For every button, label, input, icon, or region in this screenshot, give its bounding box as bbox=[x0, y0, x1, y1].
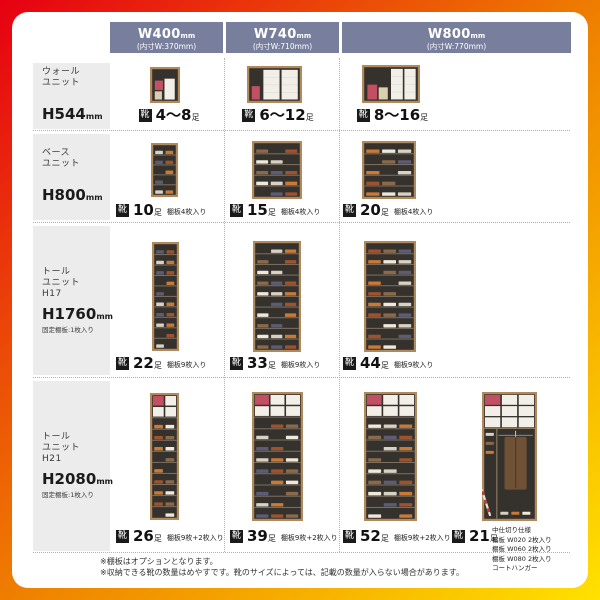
shelf-count-note: 棚板9枚入り bbox=[394, 360, 433, 370]
shelf-count-note: 棚板9枚入り bbox=[281, 360, 320, 370]
fixed-shelf-note: 固定棚板:1枚入り bbox=[42, 326, 110, 335]
shelf-count-note: 棚板4枚入り bbox=[167, 207, 206, 217]
cabinet-image-w800-h800 bbox=[362, 141, 416, 199]
capacity-label-w740-h1760: 靴 33 足 棚板9枚入り bbox=[230, 355, 335, 371]
column-inner-width: (内寸W:770mm) bbox=[342, 43, 571, 52]
shoe-badge-icon: 靴 bbox=[230, 357, 243, 370]
row-height-value: H800 bbox=[42, 186, 86, 204]
row-height-value: H1760 bbox=[42, 305, 96, 323]
capacity-label-w400-h2080: 靴 26 足 棚板9枚+2枚入り bbox=[116, 528, 228, 544]
capacity-label-w740-h800: 靴 15 足 棚板4枚入り bbox=[230, 202, 335, 218]
coat-unit-spec-notes: 中仕切り仕様 棚板 W020 2枚入り 棚板 W060 2枚入り 棚板 W080… bbox=[492, 526, 577, 574]
capacity-label-w740-h544: 靴 6〜12 足 bbox=[237, 107, 319, 123]
capacity-label-w400-h1760: 靴 22 足 棚板9枚入り bbox=[116, 355, 221, 371]
cabinet-image-w400-h1760 bbox=[152, 242, 179, 351]
capacity-label-w400-h544: 靴 4〜8 足 bbox=[134, 107, 204, 123]
shoe-badge-icon: 靴 bbox=[343, 357, 356, 370]
shoe-badge-icon: 靴 bbox=[230, 204, 243, 217]
shelf-count-note: 棚板4枚入り bbox=[394, 207, 433, 217]
column-divider bbox=[224, 58, 225, 552]
row-height-value: H544 bbox=[42, 105, 86, 123]
capacity-label-w800-h2080: 靴 52 足 棚板9枚+2枚入り bbox=[343, 528, 455, 544]
shelf-count-note: 棚板4枚入り bbox=[281, 207, 320, 217]
column-divider bbox=[339, 58, 340, 552]
shoe-badge-icon: 靴 bbox=[452, 530, 465, 543]
row-header-tall-unit-h21: トール ユニット H21 H2080mm 固定棚板:1枚入り bbox=[33, 381, 110, 551]
shoe-badge-icon: 靴 bbox=[242, 109, 255, 122]
shoe-badge-icon: 靴 bbox=[116, 530, 129, 543]
shoe-badge-icon: 靴 bbox=[230, 530, 243, 543]
row-header-tall-unit-h17: トール ユニット H17 H1760mm 固定棚板:1枚入り bbox=[33, 226, 110, 375]
row-header-base-unit: ベース ユニット H800mm bbox=[33, 134, 110, 220]
cabinet-image-w800-h1760 bbox=[364, 241, 416, 352]
shoe-badge-icon: 靴 bbox=[139, 109, 152, 122]
shelf-count-note: 棚板9枚+2枚入り bbox=[167, 533, 224, 543]
fixed-shelf-note: 固定棚板:1枚入り bbox=[42, 491, 110, 500]
capacity-label-w800-h800: 靴 20 足 棚板4枚入り bbox=[343, 202, 453, 218]
shoe-badge-icon: 靴 bbox=[357, 109, 370, 122]
column-header-w800: W800mm (内寸W:770mm) bbox=[342, 22, 571, 53]
row-divider bbox=[33, 222, 570, 223]
column-header-w400: W400mm (内寸W:370mm) bbox=[110, 22, 223, 53]
cabinet-image-w740-h2080 bbox=[252, 392, 303, 521]
shelf-count-note: 棚板9枚+2枚入り bbox=[281, 533, 338, 543]
shelf-count-note: 棚板9枚入り bbox=[167, 360, 206, 370]
column-width-value: W400 bbox=[138, 27, 181, 42]
cabinet-image-w800-h544 bbox=[362, 65, 420, 103]
capacity-label-w400-h800: 靴 10 足 棚板4枚入り bbox=[116, 202, 221, 218]
footnote-shelf-option: ※棚板はオプションとなります。 bbox=[100, 556, 218, 567]
column-inner-width: (内寸W:370mm) bbox=[110, 43, 223, 52]
capacity-label-w740-h2080: 靴 39 足 棚板9枚+2枚入り bbox=[230, 528, 342, 544]
cabinet-image-w400-h2080 bbox=[150, 393, 179, 520]
row-header-wall-unit: ウォール ユニット H544mm bbox=[33, 63, 110, 129]
capacity-label-w800-h1760: 靴 44 足 棚板9枚入り bbox=[343, 355, 453, 371]
column-width-value: W740 bbox=[254, 27, 297, 42]
capacity-label-w800-h2080-coat: 靴 21 足 bbox=[452, 528, 492, 544]
column-width-value: W800 bbox=[428, 27, 471, 42]
cabinet-image-w400-h544 bbox=[150, 67, 180, 103]
row-divider bbox=[33, 130, 570, 131]
cabinet-image-w740-h800 bbox=[252, 141, 302, 199]
cabinet-image-w740-h544 bbox=[247, 66, 302, 103]
capacity-label-w800-h544: 靴 8〜16 足 bbox=[350, 107, 435, 123]
shoe-badge-icon: 靴 bbox=[343, 204, 356, 217]
cabinet-image-w800-h2080-coat bbox=[482, 392, 537, 521]
row-height-value: H2080 bbox=[42, 470, 96, 488]
row-divider bbox=[33, 377, 570, 378]
shoe-badge-icon: 靴 bbox=[116, 204, 129, 217]
cabinet-image-w800-h2080 bbox=[364, 392, 417, 521]
cabinet-image-w400-h800 bbox=[151, 143, 178, 197]
column-inner-width: (内寸W:710mm) bbox=[226, 43, 339, 52]
shelf-count-note: 棚板9枚+2枚入り bbox=[394, 533, 451, 543]
row-divider bbox=[33, 552, 570, 553]
shoe-badge-icon: 靴 bbox=[343, 530, 356, 543]
cabinet-image-w740-h1760 bbox=[253, 241, 301, 352]
footnote-capacity-guide: ※収納できる靴の数量はめやすです。靴のサイズによっては、記載の数量が入らない場合… bbox=[100, 567, 464, 578]
shoe-cabinet-spec-sheet: W400mm (内寸W:370mm) W740mm (内寸W:710mm) W8… bbox=[0, 0, 600, 600]
column-header-w740: W740mm (内寸W:710mm) bbox=[226, 22, 339, 53]
shoe-badge-icon: 靴 bbox=[116, 357, 129, 370]
